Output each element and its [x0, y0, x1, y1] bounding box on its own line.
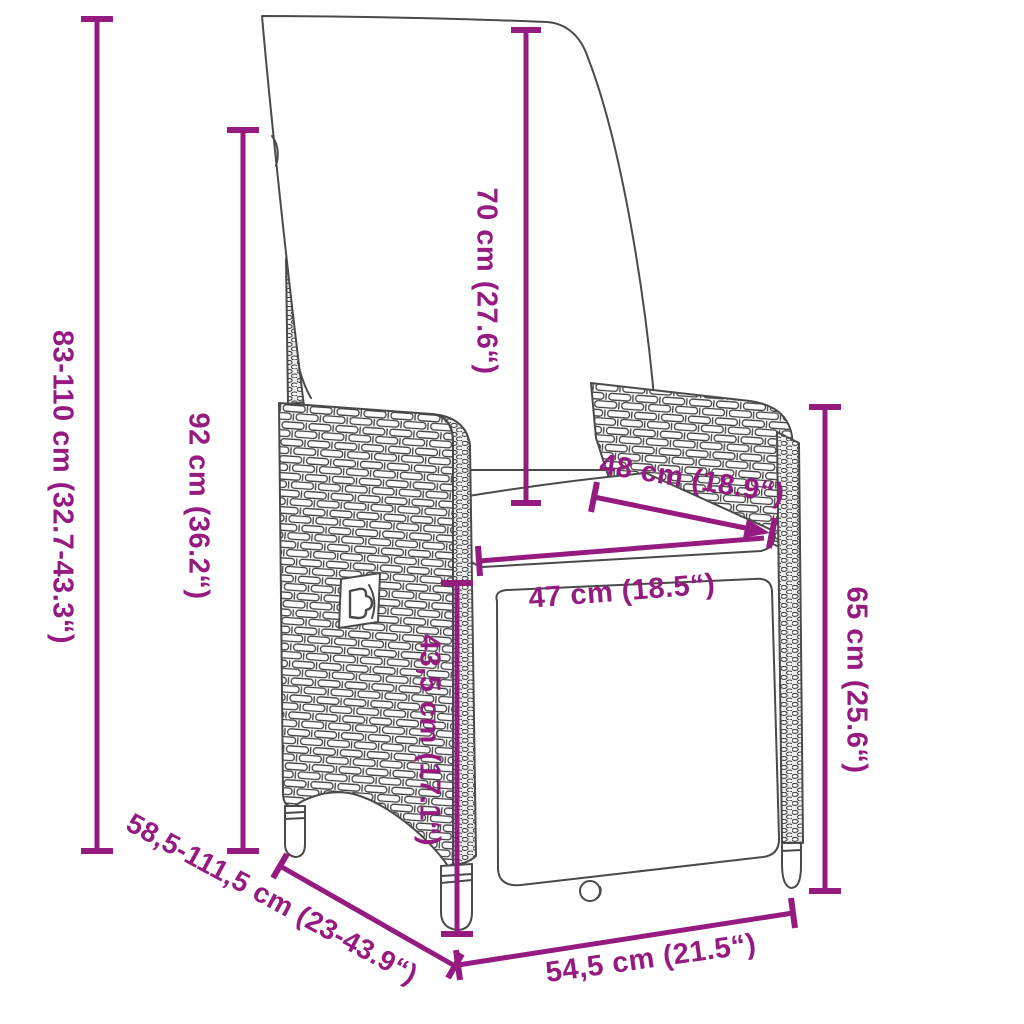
overall-height-label: 83-110 cm (32.7-43.3“) [46, 330, 79, 644]
back-cushion-height-label: 70 cm (27.6“) [470, 187, 503, 374]
footrest-panel [496, 579, 779, 885]
dim-line-backrest-height [227, 130, 259, 851]
rear-leg-band [285, 812, 305, 813]
rear-leg-band [285, 818, 305, 819]
dim-line-overall-height [81, 19, 113, 851]
seat-height-label: 43,5 cm (17.1“) [413, 634, 446, 846]
product-dimension-image: 83-110 cm (32.7-43.3“) 92 cm (36.2“) 70 … [0, 0, 1024, 1024]
backrest-height-label: 92 cm (36.2“) [182, 412, 215, 599]
armrest-height-label: 65 cm (25.6“) [840, 586, 873, 773]
chair-dimension-drawing [0, 0, 1024, 1024]
dim-line-armrest-height [809, 407, 841, 891]
far-leg-band [782, 850, 801, 851]
